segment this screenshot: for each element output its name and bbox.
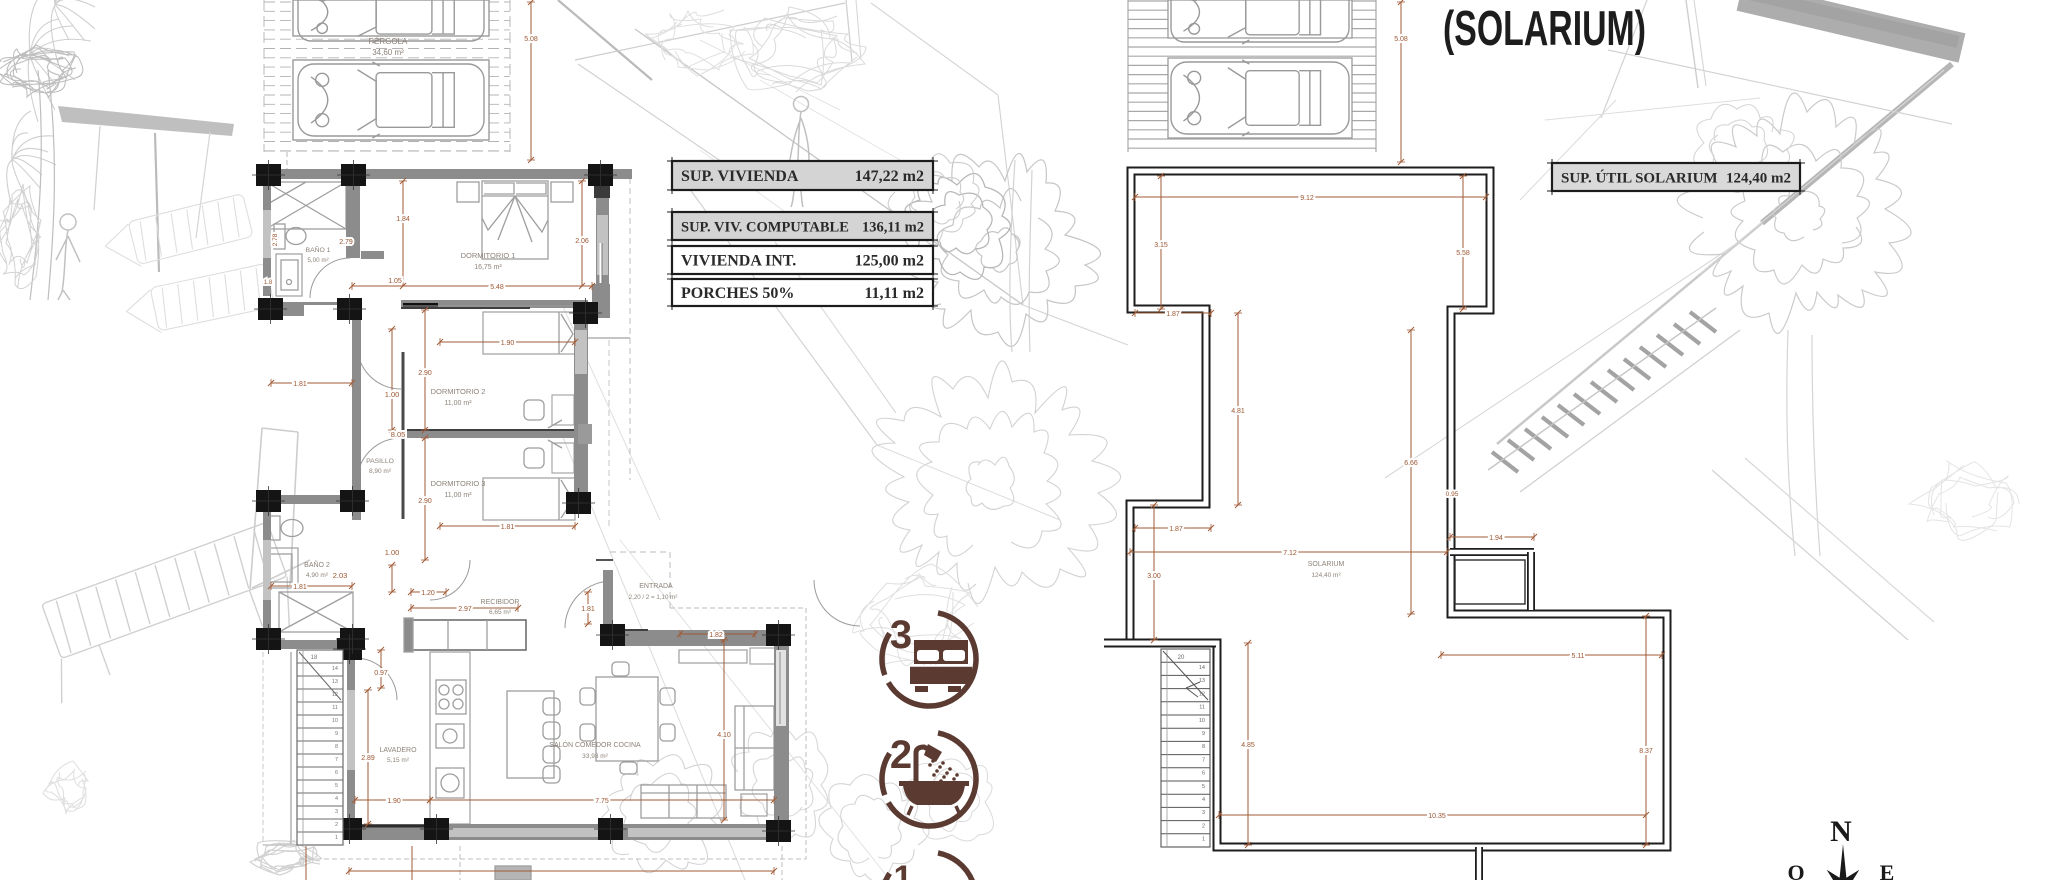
svg-text:DORMITORIO 1: DORMITORIO 1: [461, 251, 516, 260]
svg-text:9: 9: [1202, 731, 1205, 737]
svg-text:11: 11: [1199, 705, 1205, 711]
svg-text:8.05: 8.05: [391, 430, 406, 439]
svg-text:8,90 m²: 8,90 m²: [369, 468, 392, 475]
svg-text:PASILLO: PASILLO: [366, 458, 394, 465]
svg-text:2: 2: [1202, 823, 1205, 829]
svg-text:20: 20: [1178, 655, 1185, 661]
svg-text:6,65 m²: 6,65 m²: [489, 609, 512, 616]
svg-text:1.81: 1.81: [293, 584, 307, 591]
svg-text:4.85: 4.85: [1241, 742, 1255, 749]
svg-text:DORMITORIO 3: DORMITORIO 3: [431, 479, 486, 488]
svg-text:LAVADERO: LAVADERO: [379, 747, 417, 754]
svg-text:RECIBIDOR: RECIBIDOR: [481, 599, 520, 606]
svg-text:1.00: 1.00: [385, 548, 400, 557]
svg-text:1.05: 1.05: [388, 278, 402, 285]
svg-text:12: 12: [332, 692, 338, 698]
svg-text:1.81: 1.81: [293, 381, 307, 388]
svg-text:5.48: 5.48: [490, 284, 504, 291]
svg-text:DORMITORIO 2: DORMITORIO 2: [431, 387, 486, 396]
svg-text:7.12: 7.12: [1283, 550, 1297, 557]
svg-text:1.00: 1.00: [385, 390, 400, 399]
svg-text:SOLARIUM: SOLARIUM: [1308, 561, 1345, 568]
svg-text:ENTRADA: ENTRADA: [639, 583, 673, 590]
svg-text:SALÓN COMEDOR COCINA: SALÓN COMEDOR COCINA: [549, 740, 641, 749]
svg-text:1.8: 1.8: [264, 280, 273, 286]
svg-text:5,00 m²: 5,00 m²: [307, 257, 328, 264]
svg-text:1.90: 1.90: [387, 798, 401, 805]
svg-text:14: 14: [1199, 665, 1205, 671]
svg-text:4: 4: [335, 796, 338, 802]
svg-text:SUP. VIV. COMPUTABLE: SUP. VIV. COMPUTABLE: [681, 220, 849, 236]
svg-text:2: 2: [890, 733, 912, 777]
svg-text:1.87: 1.87: [1169, 526, 1183, 533]
svg-text:147,22 m2: 147,22 m2: [855, 168, 924, 185]
svg-text:E: E: [1880, 860, 1895, 880]
svg-text:5.08: 5.08: [1394, 36, 1408, 43]
svg-text:2.97: 2.97: [458, 606, 472, 613]
svg-text:1.82: 1.82: [709, 632, 723, 639]
svg-text:8.37: 8.37: [1639, 748, 1653, 755]
svg-text:5.08: 5.08: [524, 36, 538, 43]
svg-text:7: 7: [335, 757, 338, 763]
svg-text:5: 5: [1202, 784, 1205, 790]
svg-text:2.89: 2.89: [361, 755, 375, 762]
svg-text:124,40 m2: 124,40 m2: [1726, 171, 1791, 187]
svg-text:3: 3: [1202, 810, 1205, 816]
svg-text:(SOLARIUM): (SOLARIUM): [1443, 2, 1646, 56]
svg-text:1: 1: [1202, 837, 1205, 843]
svg-text:18: 18: [311, 655, 318, 661]
svg-text:N: N: [1830, 815, 1852, 848]
svg-text:1.94: 1.94: [1489, 535, 1503, 542]
svg-text:13: 13: [332, 679, 338, 685]
svg-text:11,00 m²: 11,00 m²: [444, 492, 472, 499]
svg-text:8: 8: [335, 744, 338, 750]
svg-text:3.00: 3.00: [1147, 573, 1161, 580]
svg-text:2: 2: [335, 822, 338, 828]
svg-text:11: 11: [332, 705, 338, 711]
svg-text:13: 13: [1199, 678, 1205, 684]
svg-text:2.03: 2.03: [333, 571, 348, 580]
svg-text:3.15: 3.15: [1154, 242, 1168, 249]
svg-text:9.12: 9.12: [1300, 195, 1314, 202]
svg-text:3: 3: [890, 613, 912, 657]
svg-text:1: 1: [894, 859, 913, 880]
svg-text:0.95: 0.95: [1446, 491, 1459, 498]
svg-text:4: 4: [1202, 797, 1205, 803]
svg-text:1.20: 1.20: [421, 590, 435, 597]
svg-text:124,40 m²: 124,40 m²: [1311, 572, 1341, 579]
svg-text:5.11: 5.11: [1571, 653, 1584, 660]
svg-text:16,75 m²: 16,75 m²: [474, 264, 502, 271]
svg-text:BAÑO 1: BAÑO 1: [306, 245, 331, 254]
svg-text:SUP. VIVIENDA: SUP. VIVIENDA: [681, 168, 799, 185]
svg-text:1.84: 1.84: [396, 216, 410, 223]
svg-text:O: O: [1787, 860, 1804, 880]
svg-text:5,15 m²: 5,15 m²: [387, 757, 410, 764]
svg-text:1.81: 1.81: [501, 524, 515, 531]
svg-text:0.97: 0.97: [374, 670, 388, 677]
svg-text:4.81: 4.81: [1231, 408, 1245, 415]
svg-text:10: 10: [332, 718, 338, 724]
svg-text:33,93 m²: 33,93 m²: [582, 753, 608, 760]
svg-text:5.58: 5.58: [1456, 250, 1470, 257]
svg-text:11,11 m2: 11,11 m2: [864, 285, 924, 302]
svg-text:34,60 m²: 34,60 m²: [372, 48, 404, 57]
svg-text:1.87: 1.87: [1166, 311, 1180, 318]
svg-text:1.90: 1.90: [501, 340, 515, 347]
svg-text:1: 1: [335, 835, 338, 841]
svg-text:3: 3: [335, 809, 338, 815]
svg-text:1.81: 1.81: [581, 606, 595, 613]
svg-text:14: 14: [332, 666, 338, 672]
svg-text:12: 12: [1199, 691, 1205, 697]
svg-text:6: 6: [1202, 771, 1205, 777]
svg-text:7.75: 7.75: [595, 798, 609, 805]
svg-text:8: 8: [1202, 744, 1205, 750]
svg-text:7: 7: [1202, 757, 1205, 763]
svg-text:6.66: 6.66: [1404, 460, 1418, 467]
svg-text:2.79: 2.79: [339, 239, 353, 246]
svg-text:6: 6: [335, 770, 338, 776]
svg-text:125,00 m2: 125,00 m2: [855, 253, 924, 270]
svg-text:11,00 m²: 11,00 m²: [444, 400, 472, 407]
svg-text:4,90 m²: 4,90 m²: [306, 572, 329, 579]
svg-text:2.06: 2.06: [575, 238, 589, 245]
svg-text:10: 10: [1199, 718, 1205, 724]
svg-text:4.10: 4.10: [717, 732, 731, 739]
svg-text:136,11 m2: 136,11 m2: [862, 220, 924, 236]
svg-text:BAÑO 2: BAÑO 2: [304, 560, 330, 569]
svg-text:10.35: 10.35: [1428, 813, 1446, 820]
svg-text:PORCHES 50%: PORCHES 50%: [681, 285, 794, 302]
svg-text:2.78: 2.78: [272, 233, 279, 246]
svg-text:2,20 / 2 = 1,10 m²: 2,20 / 2 = 1,10 m²: [629, 594, 678, 601]
svg-text:2.90: 2.90: [418, 370, 432, 377]
svg-text:9: 9: [335, 731, 338, 737]
svg-text:VIVIENDA INT.: VIVIENDA INT.: [681, 253, 796, 270]
svg-text:5: 5: [335, 783, 338, 789]
svg-text:2.90: 2.90: [418, 498, 432, 505]
svg-text:PÉRGOLA: PÉRGOLA: [369, 37, 408, 46]
svg-text:SUP. ÚTIL SOLARIUM: SUP. ÚTIL SOLARIUM: [1561, 170, 1718, 187]
